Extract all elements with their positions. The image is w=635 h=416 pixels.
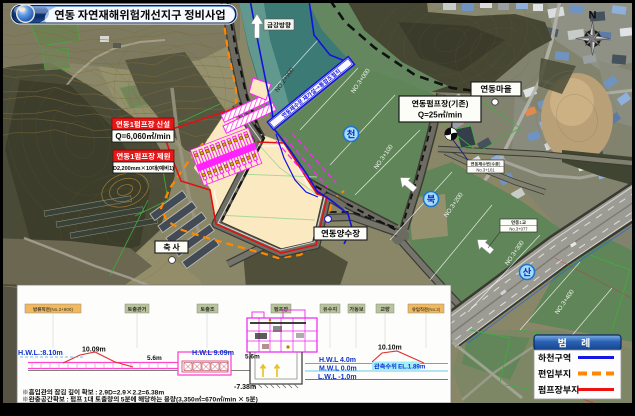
svg-text:10.09m: 10.09m <box>82 345 106 355</box>
svg-text:유입직전(No.3): 유입직전(No.3) <box>412 307 441 313</box>
svg-text:연동 자연재해위험개선지구 정비사업: 연동 자연재해위험개선지구 정비사업 <box>54 7 225 23</box>
svg-text:5.6m: 5.6m <box>147 352 162 362</box>
svg-text:H.W.L.:8.10m: H.W.L.:8.10m <box>18 348 63 358</box>
svg-text:Q=6,060㎥/min: Q=6,060㎥/min <box>115 131 170 142</box>
svg-text:※완충공간확보 : 펌프 1대 토출량의 5분에 해당하는: ※완충공간확보 : 펌프 1대 토출량의 5분에 해당하는 용량(3,350㎥=… <box>22 394 258 404</box>
svg-text:연동마을: 연동마을 <box>480 83 511 95</box>
svg-text:연동제수변(수문): 연동제수변(수문) <box>471 161 501 167</box>
svg-text:연동양수장: 연동양수장 <box>321 228 360 240</box>
svg-text:펌프장부지: 펌프장부지 <box>538 383 579 396</box>
svg-text:-7.38m: -7.38m <box>234 382 256 392</box>
svg-text:산: 산 <box>523 264 532 278</box>
svg-text:N: N <box>589 7 597 23</box>
svg-text:하천구역: 하천구역 <box>538 351 571 364</box>
svg-text:10.10m: 10.10m <box>378 343 402 353</box>
svg-text:편입부지: 편입부지 <box>538 367 571 380</box>
svg-text:펌프장: 펌프장 <box>274 306 289 313</box>
svg-text:L.W.L -1.0m: L.W.L -1.0m <box>318 372 357 382</box>
svg-text:축 사: 축 사 <box>163 242 180 253</box>
svg-text:토출조: 토출조 <box>200 306 215 313</box>
svg-text:연동1펌프장 제원: 연동1펌프장 제원 <box>116 151 170 162</box>
svg-text:연동펌프장(기존): 연동펌프장(기존) <box>412 99 469 110</box>
svg-text:북: 북 <box>427 191 436 205</box>
svg-text:관측수위 EL.1.89m: 관측수위 EL.1.89m <box>374 362 426 371</box>
svg-text:가동보: 가동보 <box>349 306 364 313</box>
svg-text:H.W.L 9.09m: H.W.L 9.09m <box>192 348 234 358</box>
svg-text:연동1교: 연동1교 <box>511 220 526 226</box>
svg-text:5.6m: 5.6m <box>245 351 260 361</box>
svg-text:금강방향: 금강방향 <box>267 20 291 30</box>
svg-text:연동1펌프장 신설: 연동1펌프장 신설 <box>116 119 170 130</box>
svg-text:범 례: 범 례 <box>558 335 597 350</box>
svg-text:No.3+101: No.3+101 <box>476 168 495 174</box>
svg-text:토출관거: 토출관거 <box>127 306 146 313</box>
svg-text:천: 천 <box>347 126 356 140</box>
svg-text:교량: 교량 <box>380 306 390 313</box>
svg-text:No.3+077: No.3+077 <box>509 227 528 233</box>
svg-text:방류직전(No.2+900): 방류직전(No.2+900) <box>33 307 73 313</box>
svg-text:유수지: 유수지 <box>323 306 338 313</box>
svg-text:D2,200mm×10대(예비1): D2,200mm×10대(예비1) <box>113 164 174 172</box>
svg-text:Q=25㎥/min: Q=25㎥/min <box>418 110 462 121</box>
